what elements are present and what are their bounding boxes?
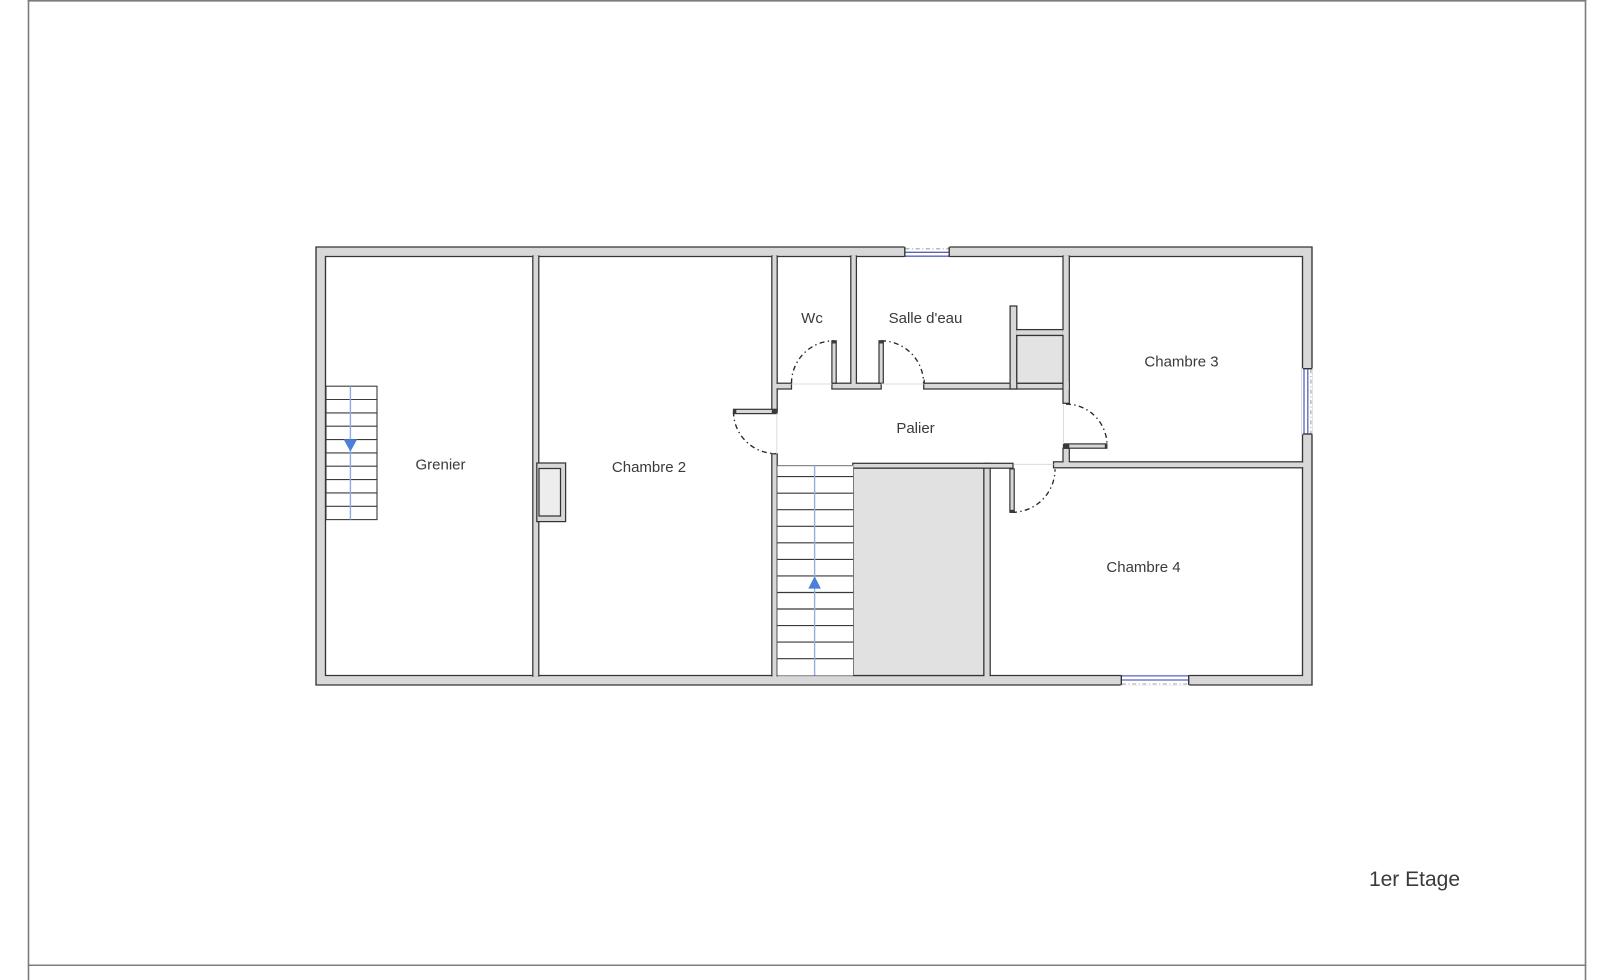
- svg-text:Salle d'eau: Salle d'eau: [889, 310, 963, 327]
- svg-text:Chambre 4: Chambre 4: [1106, 559, 1180, 576]
- svg-text:Wc: Wc: [801, 310, 823, 327]
- svg-text:Palier: Palier: [896, 420, 934, 437]
- svg-text:Chambre 2: Chambre 2: [612, 459, 686, 476]
- svg-text:Grenier: Grenier: [415, 456, 465, 473]
- svg-text:1er Etage: 1er Etage: [1369, 868, 1460, 891]
- svg-text:Chambre 3: Chambre 3: [1144, 353, 1218, 370]
